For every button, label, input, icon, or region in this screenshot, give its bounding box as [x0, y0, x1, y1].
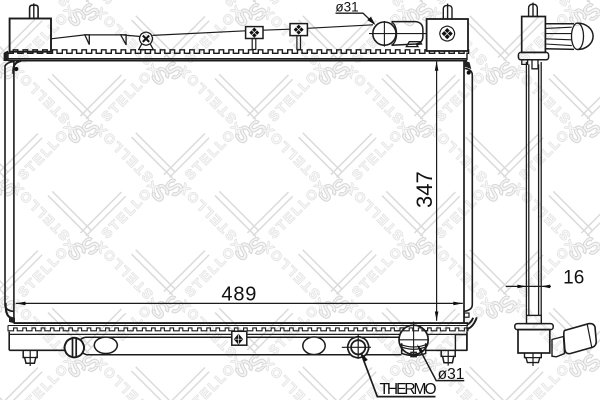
svg-text:ø31: ø31 [335, 0, 358, 15]
svg-text:16: 16 [563, 267, 584, 288]
svg-text:347: 347 [412, 171, 437, 208]
svg-text:THERMO: THERMO [380, 381, 437, 398]
svg-text:489: 489 [221, 283, 257, 305]
svg-text:ø31: ø31 [438, 366, 465, 383]
